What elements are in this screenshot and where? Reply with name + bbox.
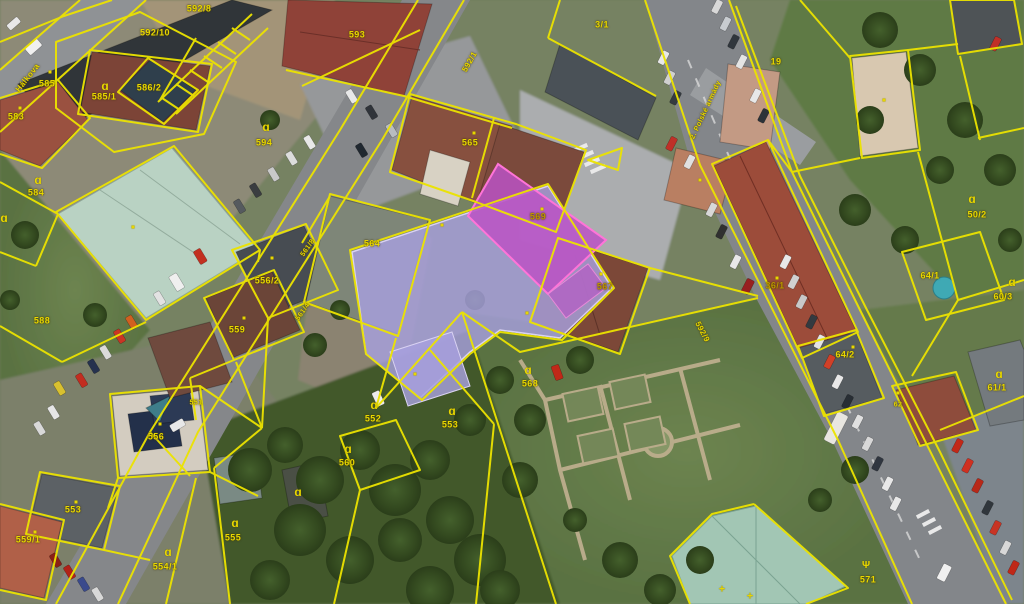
parcel-centroid-dot	[600, 273, 603, 276]
parcel-centroid-dot	[75, 501, 78, 504]
parcel-centroid-dot	[243, 317, 246, 320]
parcel-centroid-dot	[132, 226, 135, 229]
parcel-centroid-dot	[526, 312, 529, 315]
parcel-centroid-dot	[441, 224, 444, 227]
parcel-centroid-dot	[414, 373, 417, 376]
parcel-centroid-dot	[776, 277, 779, 280]
parcel-centroid-dot	[49, 71, 52, 74]
cadastral-map-canvas[interactable]: Hálkova2. Polské armády592/1592/95835855…	[0, 0, 1024, 604]
map-graphics	[0, 0, 1024, 604]
parcel-centroid-dot	[852, 346, 855, 349]
parcel-centroid-dot	[473, 132, 476, 135]
parcel-centroid-dot	[541, 208, 544, 211]
parcel-centroid-dot	[34, 531, 37, 534]
parcel-centroid-dot	[699, 179, 702, 182]
parcel-centroid-dot	[271, 257, 274, 260]
parcel-centroid-dot	[897, 392, 900, 395]
parcel-centroid-dot	[159, 423, 162, 426]
parcel-centroid-dot	[883, 99, 886, 102]
parcel-centroid-dot	[19, 107, 22, 110]
